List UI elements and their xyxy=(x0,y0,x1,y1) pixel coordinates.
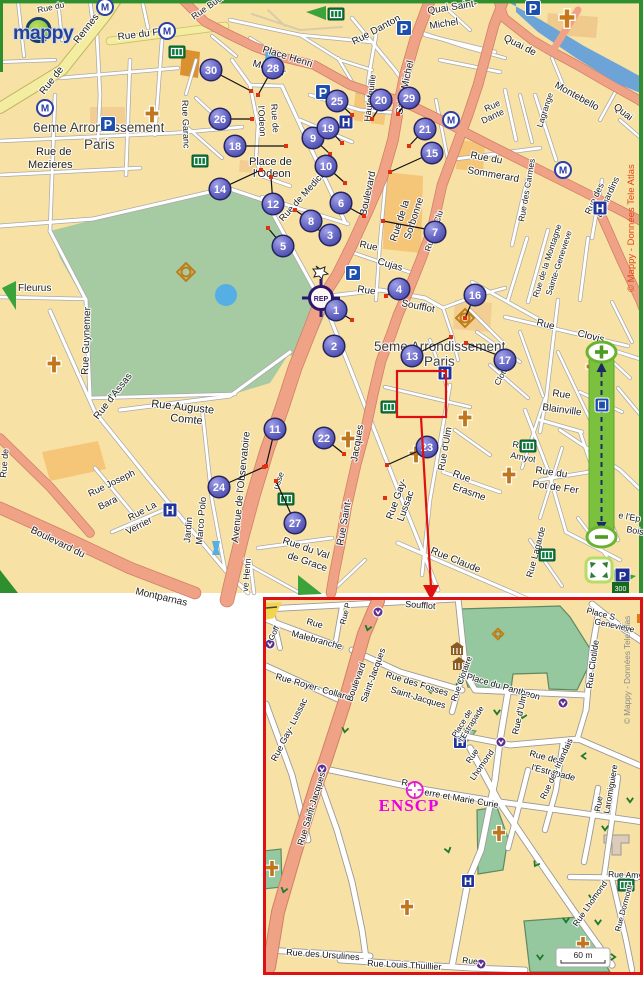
svg-text:P: P xyxy=(104,117,113,132)
svg-text:14: 14 xyxy=(214,184,227,196)
svg-text:26: 26 xyxy=(214,114,226,126)
svg-text:30: 30 xyxy=(205,65,217,77)
svg-text:H: H xyxy=(342,115,351,129)
svg-text:Fleurus: Fleurus xyxy=(18,283,51,294)
svg-text:P: P xyxy=(619,571,626,583)
svg-text:6: 6 xyxy=(338,198,344,210)
svg-text:1: 1 xyxy=(333,305,339,317)
svg-text:19: 19 xyxy=(322,123,334,135)
svg-text:H: H xyxy=(166,503,175,517)
svg-text:Rue de: Rue de xyxy=(36,146,71,158)
svg-text:Rue Amyot: Rue Amyot xyxy=(608,869,643,880)
svg-text:M: M xyxy=(41,104,49,115)
svg-text:Paris: Paris xyxy=(84,137,115,152)
svg-text:18: 18 xyxy=(229,141,241,153)
svg-text:21: 21 xyxy=(419,124,431,136)
svg-text:6eme Arrondissement: 6eme Arrondissement xyxy=(33,120,165,135)
svg-text:60 m: 60 m xyxy=(574,950,593,960)
svg-text:11: 11 xyxy=(269,424,281,436)
svg-text:Rue: Rue xyxy=(462,955,479,966)
svg-text:P: P xyxy=(400,21,409,36)
svg-text:29: 29 xyxy=(403,93,415,105)
svg-text:5: 5 xyxy=(280,241,286,253)
svg-text:27: 27 xyxy=(289,518,301,530)
svg-text:mappy: mappy xyxy=(13,22,74,44)
svg-text:12: 12 xyxy=(267,199,279,211)
svg-text:ENSCP: ENSCP xyxy=(379,796,440,815)
svg-text:M: M xyxy=(101,3,109,14)
svg-text:REP: REP xyxy=(314,296,329,303)
svg-text:16: 16 xyxy=(469,290,481,302)
svg-text:10: 10 xyxy=(320,161,332,173)
svg-text:Rue de: Rue de xyxy=(269,103,281,133)
svg-text:M: M xyxy=(163,27,171,38)
svg-text:2: 2 xyxy=(331,341,337,353)
svg-text:M: M xyxy=(447,116,455,127)
svg-text:l'Odeon: l'Odeon xyxy=(256,105,268,136)
svg-text:3: 3 xyxy=(327,230,333,242)
svg-text:8: 8 xyxy=(308,216,314,228)
svg-text:17: 17 xyxy=(499,355,511,367)
svg-text:Mezieres: Mezieres xyxy=(28,159,73,171)
svg-text:9: 9 xyxy=(310,133,316,145)
svg-text:20: 20 xyxy=(375,95,387,107)
svg-text:H: H xyxy=(596,201,605,215)
svg-text:P: P xyxy=(529,1,538,16)
svg-text:13: 13 xyxy=(406,351,418,363)
svg-text:© Mappy - Données Tele Atlas: © Mappy - Données Tele Atlas xyxy=(626,164,637,292)
svg-text:7: 7 xyxy=(432,227,438,239)
svg-text:H: H xyxy=(464,876,472,888)
svg-text:4: 4 xyxy=(396,284,403,296)
svg-text:28: 28 xyxy=(267,63,279,75)
svg-text:5eme Arrondissement: 5eme Arrondissement xyxy=(374,339,506,354)
svg-text:300: 300 xyxy=(615,586,627,593)
svg-text:22: 22 xyxy=(318,433,330,445)
svg-text:Place de: Place de xyxy=(249,156,292,168)
svg-text:15: 15 xyxy=(426,148,438,160)
svg-text:M: M xyxy=(559,166,567,177)
svg-text:25: 25 xyxy=(331,96,343,108)
svg-text:P: P xyxy=(349,266,358,281)
svg-text:Rue Garanc: Rue Garanc xyxy=(180,100,192,149)
svg-text:© Mappy - Données TeleAtlas: © Mappy - Données TeleAtlas xyxy=(623,616,632,724)
svg-text:24: 24 xyxy=(213,482,226,494)
svg-text:Jardin: Jardin xyxy=(182,517,195,544)
